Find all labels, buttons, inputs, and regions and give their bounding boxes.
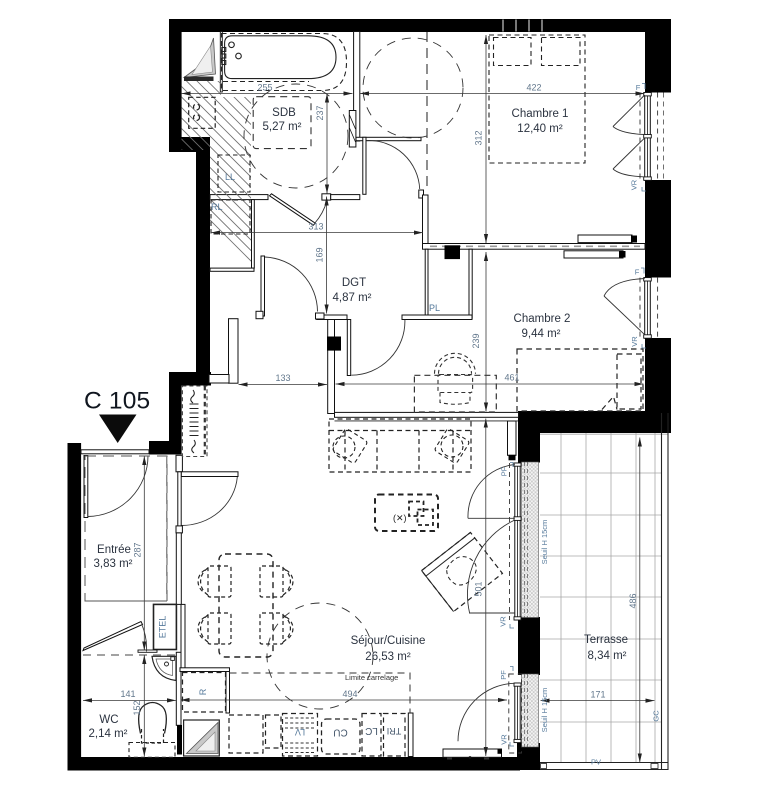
svg-text:PL: PL [429, 303, 440, 313]
svg-text:3,83 m²: 3,83 m² [94, 558, 133, 570]
svg-text:486: 486 [628, 593, 638, 608]
svg-text:4,87 m²: 4,87 m² [333, 292, 372, 304]
svg-text:Seuil H 15cm: Seuil H 15cm [540, 688, 549, 733]
svg-text:F: F [635, 268, 640, 277]
svg-text:VR: VR [630, 179, 639, 190]
svg-text:Terrasse: Terrasse [584, 634, 628, 646]
svg-text:Seuil H 15cm: Seuil H 15cm [540, 520, 549, 565]
svg-text:26,53 m²: 26,53 m² [365, 651, 411, 663]
svg-text:8,34 m²: 8,34 m² [588, 650, 627, 662]
svg-text:313: 313 [308, 222, 323, 232]
svg-text:237: 237 [315, 105, 325, 120]
svg-text:133: 133 [275, 373, 290, 383]
svg-text:GC: GC [652, 710, 661, 722]
svg-text:Limite carrelage: Limite carrelage [345, 673, 398, 682]
svg-text:239: 239 [471, 333, 481, 348]
svg-text:TRI: TRI [387, 726, 402, 736]
svg-text:Chambre 1: Chambre 1 [512, 108, 569, 120]
svg-text:CU: CU [333, 727, 347, 738]
svg-text:SDB: SDB [272, 107, 296, 119]
svg-text:ETEL: ETEL [158, 616, 168, 639]
svg-text:494: 494 [342, 689, 357, 699]
svg-text:LL: LL [225, 172, 235, 182]
svg-text:(✕): (✕) [393, 513, 407, 523]
svg-text:Entrée: Entrée [97, 544, 131, 556]
svg-text:PF: PF [499, 670, 508, 680]
svg-text:LC: LC [365, 725, 378, 736]
svg-text:461: 461 [504, 373, 519, 383]
svg-text:DGT: DGT [342, 277, 366, 289]
svg-text:5,27 m²: 5,27 m² [263, 121, 302, 133]
svg-text:Séjour/Cuisine: Séjour/Cuisine [351, 635, 426, 647]
svg-text:Chambre 2: Chambre 2 [514, 313, 571, 325]
svg-text:171: 171 [590, 689, 605, 699]
svg-text:152: 152 [132, 700, 142, 715]
svg-text:287: 287 [133, 542, 143, 557]
svg-text:F: F [636, 83, 641, 92]
svg-text:VR: VR [499, 616, 508, 627]
svg-text:9,44 m²: 9,44 m² [522, 328, 561, 340]
svg-text:501: 501 [474, 581, 484, 596]
svg-text:2,14 m²: 2,14 m² [89, 728, 128, 740]
svg-text:169: 169 [315, 247, 325, 262]
svg-text:PF: PF [500, 466, 509, 476]
svg-text:255: 255 [257, 83, 272, 93]
svg-text:422: 422 [526, 83, 541, 93]
svg-text:PV: PV [591, 758, 601, 767]
svg-text:VR: VR [500, 734, 509, 745]
svg-text:WC: WC [99, 714, 118, 726]
svg-text:RL: RL [211, 202, 223, 212]
svg-text:VR: VR [630, 336, 639, 347]
svg-text:R: R [198, 688, 208, 695]
svg-text:C 105: C 105 [84, 388, 150, 415]
svg-text:312: 312 [474, 130, 484, 145]
svg-text:141: 141 [120, 689, 135, 699]
svg-text:12,40 m²: 12,40 m² [517, 123, 563, 135]
svg-text:LV: LV [295, 727, 305, 737]
